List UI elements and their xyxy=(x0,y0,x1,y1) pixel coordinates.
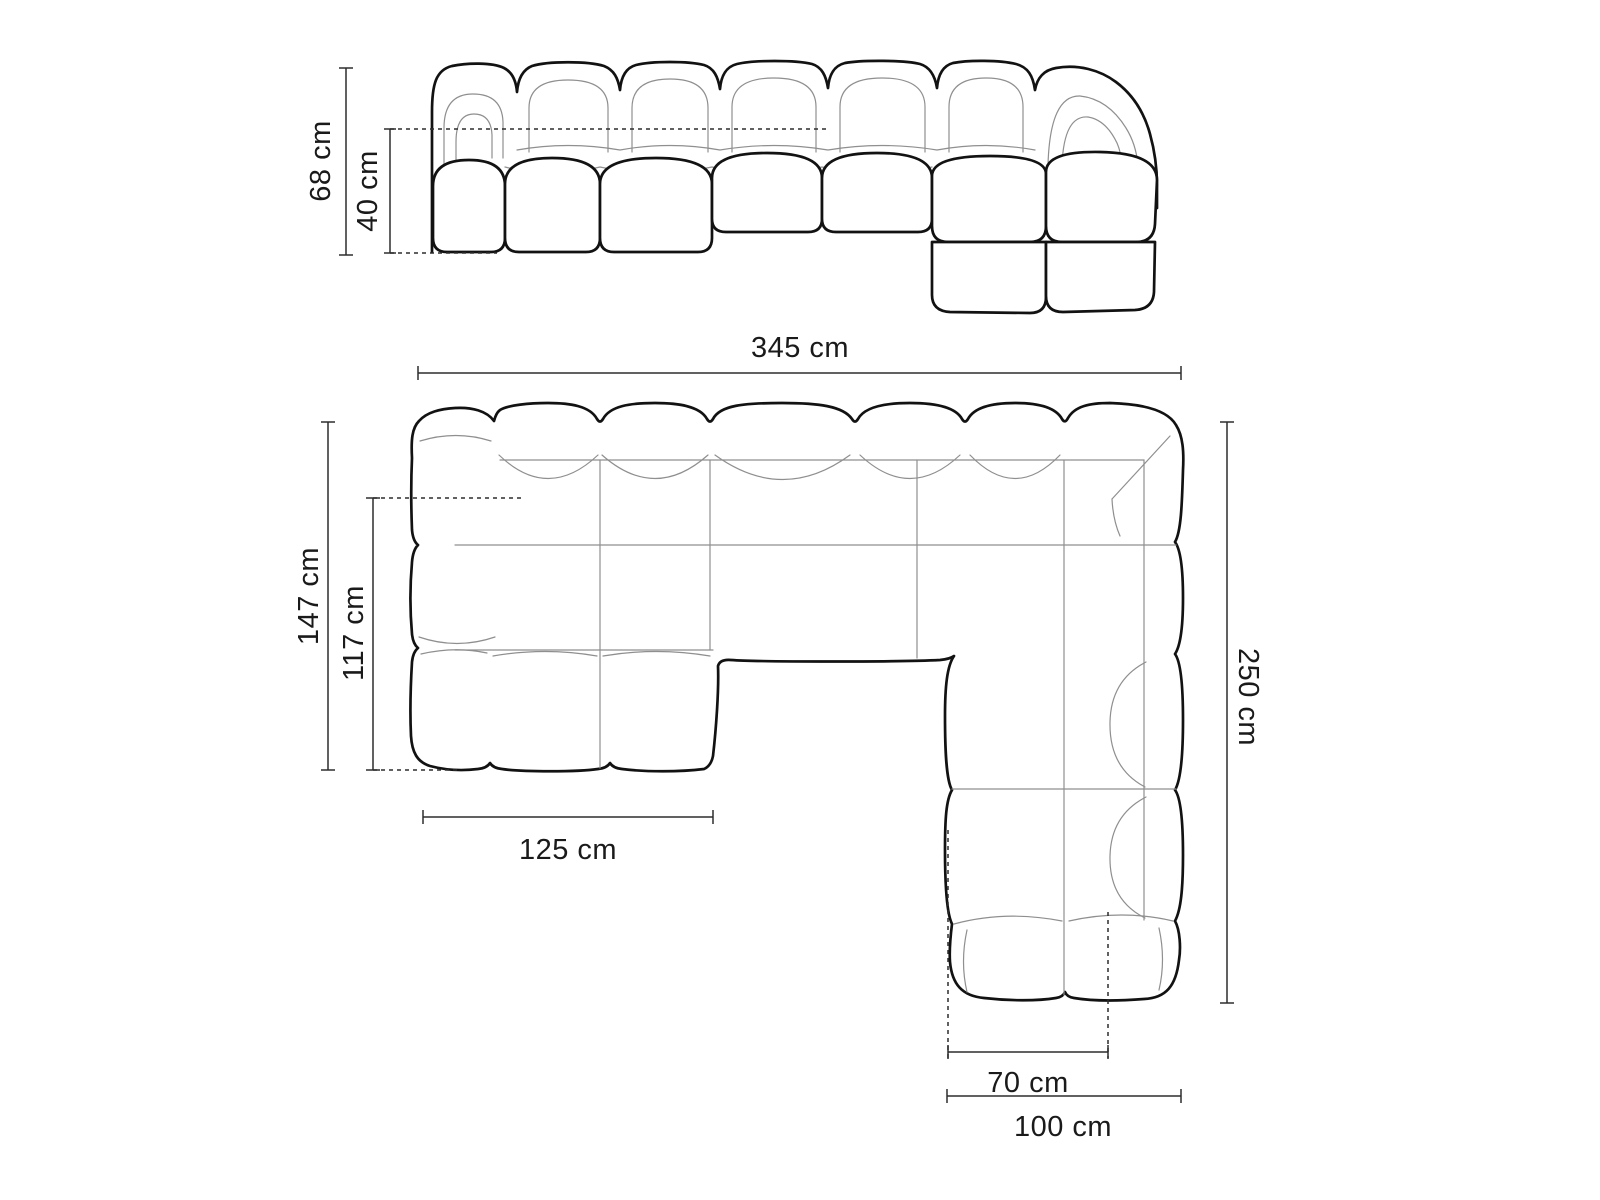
front-view-drawing xyxy=(432,61,1157,313)
dim-chaise-width xyxy=(423,810,713,824)
corner-module-bubble xyxy=(1046,152,1157,242)
dim-label-right-module-width: 100 cm xyxy=(1014,1111,1112,1143)
corner-module-bubble xyxy=(932,156,1046,242)
plan-silhouette xyxy=(410,403,1183,1000)
dim-right-length xyxy=(1220,422,1234,1003)
dim-label-right-seat-width: 70 cm xyxy=(987,1067,1068,1099)
seat-cushion xyxy=(433,160,505,252)
dim-height-total xyxy=(339,68,353,255)
seat-cushion xyxy=(822,153,932,232)
dim-label-seat-height: 40 cm xyxy=(352,150,384,231)
dim-label-height-total: 68 cm xyxy=(305,120,337,201)
seat-cushion xyxy=(600,158,712,252)
dim-width-total xyxy=(418,366,1181,380)
seat-cushion xyxy=(712,153,822,232)
corner-module-bubble xyxy=(1046,242,1155,312)
corner-module-bubble xyxy=(932,242,1046,313)
dimension-diagram-canvas: 68 cm 40 cm 345 cm 147 cm 117 cm 125 cm … xyxy=(0,0,1600,1200)
dim-label-depth-total: 147 cm xyxy=(293,547,325,645)
dim-label-right-length: 250 cm xyxy=(1232,648,1264,746)
dim-label-seat-depth: 117 cm xyxy=(338,585,370,681)
seat-cushion xyxy=(505,158,600,252)
plan-view-drawing xyxy=(410,403,1183,1000)
dim-label-width-total: 345 cm xyxy=(751,332,849,364)
dim-label-chaise-width: 125 cm xyxy=(519,834,617,866)
product-dimension-diagram: 68 cm 40 cm 345 cm 147 cm 117 cm 125 cm … xyxy=(0,0,1600,1200)
